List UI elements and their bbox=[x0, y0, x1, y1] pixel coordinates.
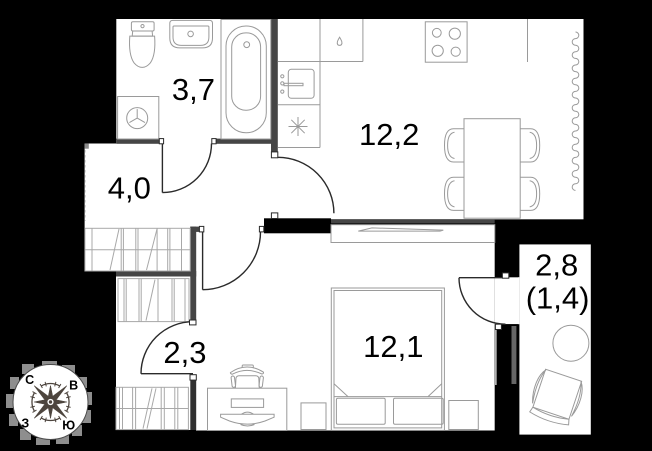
svg-text:Ю: Ю bbox=[62, 419, 75, 433]
svg-text:2,3: 2,3 bbox=[163, 335, 206, 370]
svg-text:12,2: 12,2 bbox=[359, 117, 419, 152]
svg-text:(1,4): (1,4) bbox=[526, 281, 590, 316]
svg-text:4,0: 4,0 bbox=[108, 171, 151, 206]
svg-text:3,7: 3,7 bbox=[172, 72, 215, 107]
svg-text:12,1: 12,1 bbox=[363, 329, 423, 364]
svg-text:В: В bbox=[69, 379, 78, 393]
svg-text:2,8: 2,8 bbox=[535, 247, 578, 282]
svg-text:С: С bbox=[25, 373, 34, 387]
svg-text:З: З bbox=[21, 417, 29, 431]
